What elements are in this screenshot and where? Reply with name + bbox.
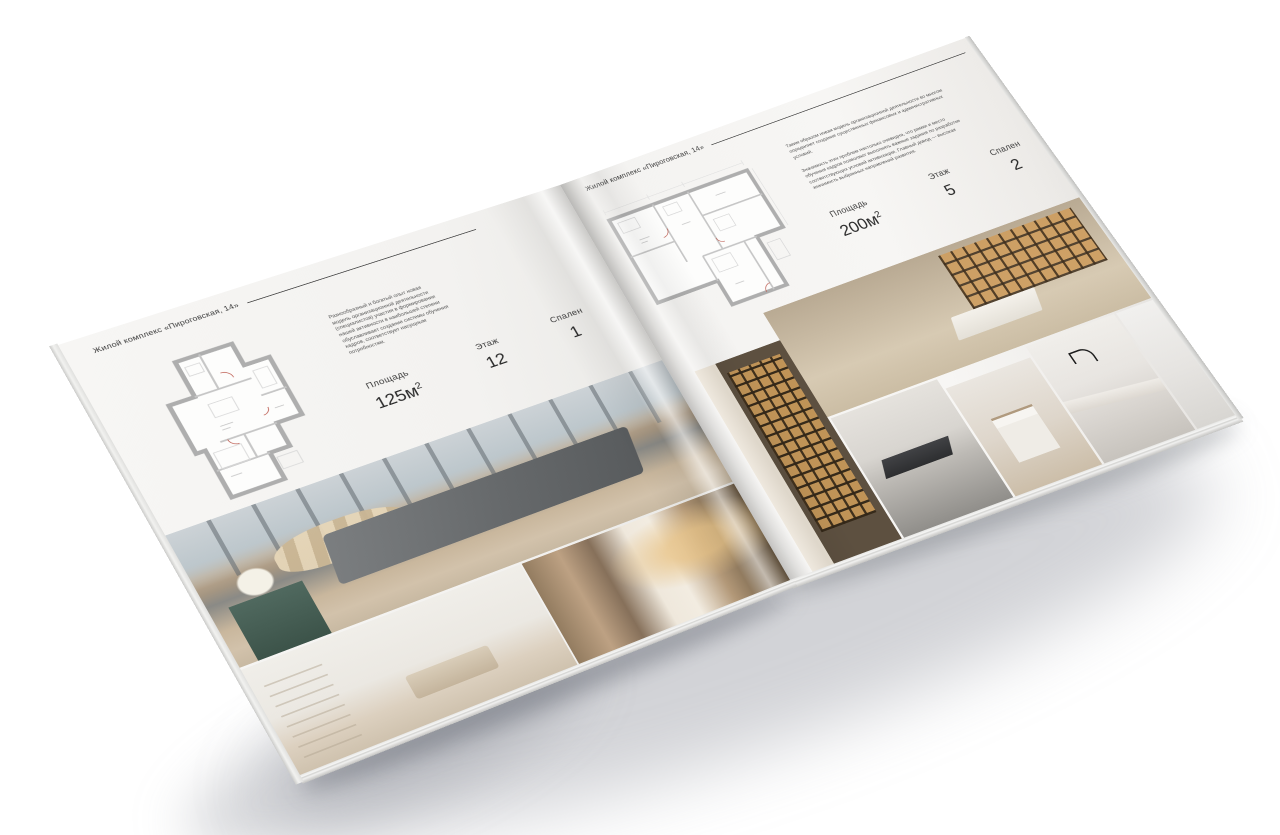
right-page-header: Жилой комплекс «Пироговская, 14» bbox=[584, 49, 967, 193]
bathroom-towel-detail bbox=[992, 406, 1060, 462]
floor-plan-125m2 bbox=[138, 327, 341, 510]
left-description-paragraph: Разнообразный и богатый опыт новая модел… bbox=[328, 280, 460, 357]
stat-area: Площадь 125м2 bbox=[364, 367, 428, 413]
stat-floor: Этаж 5 bbox=[915, 163, 978, 207]
floor-plan-walls bbox=[609, 170, 813, 327]
stat-area: Площадь 200м2 bbox=[828, 197, 887, 240]
stat-floor: Этаж 12 bbox=[459, 332, 527, 378]
floor-plan-walls bbox=[149, 335, 330, 500]
stat-bedrooms: Спален 2 bbox=[976, 135, 1049, 182]
stat-bedrooms: Спален 1 bbox=[535, 302, 609, 350]
kitchen-cooktop-detail bbox=[881, 436, 953, 479]
sink-counter-detail bbox=[1063, 378, 1167, 414]
white-bedroom-bench-detail bbox=[404, 645, 499, 700]
white-bedroom-shelves-detail bbox=[263, 662, 362, 757]
brochure-mockup-scene: Жилой комплекс «Пироговская, 14» bbox=[0, 0, 1280, 835]
